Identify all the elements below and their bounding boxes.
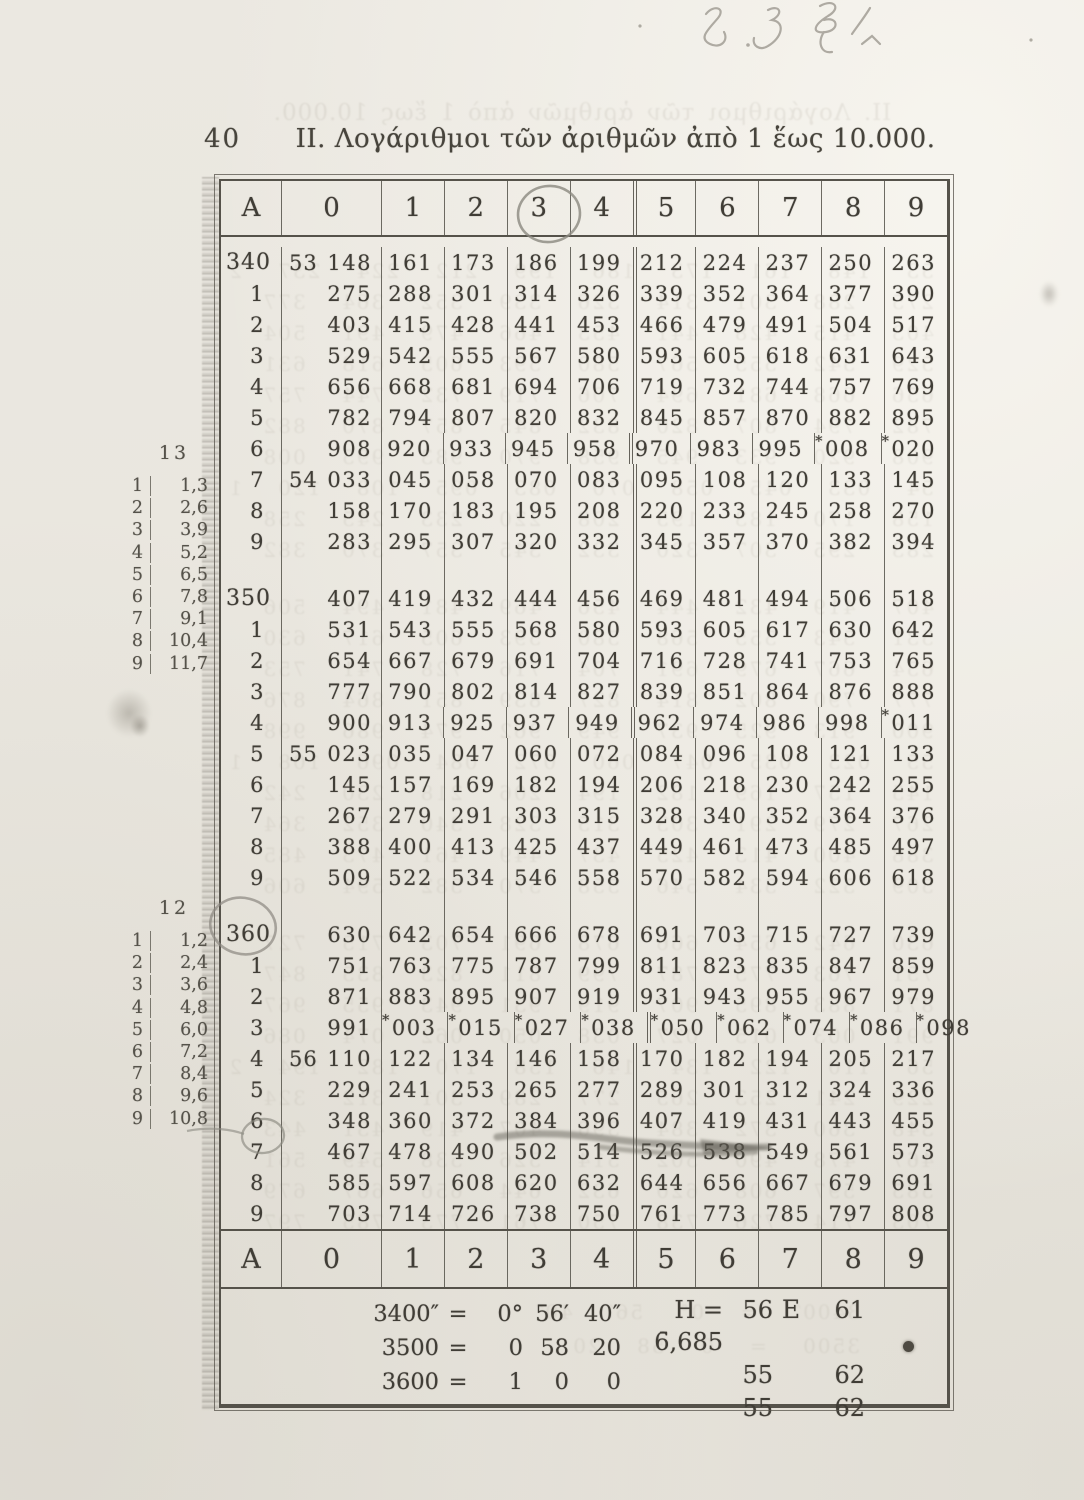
pp-part: 2,6 — [150, 498, 212, 518]
table-cell: 54033 — [281, 464, 381, 495]
table-cell: 396 — [570, 1105, 633, 1136]
table-row: 4900913925937949962974986998*011 — [221, 707, 947, 738]
table-cell: 340 — [695, 800, 758, 831]
table-cell: 706 — [570, 371, 633, 402]
table-cell: 195 — [507, 495, 570, 526]
table-cell: 907 — [507, 981, 570, 1012]
table-row: 360630642654666678691703715727739 — [221, 919, 947, 950]
cell-value: 275 — [327, 282, 372, 306]
table-cell: 345 — [633, 526, 696, 557]
h-value: 62 — [809, 1359, 865, 1391]
table-cell: 859 — [884, 950, 947, 981]
table-cell: 538 — [695, 1136, 758, 1167]
asterisk-carry-mark: * — [917, 1012, 926, 1029]
row-label: 4 — [221, 707, 281, 738]
table-cell: 811 — [633, 950, 696, 981]
table-cell: 364 — [758, 278, 821, 309]
column-header: 7 — [758, 1231, 821, 1287]
h-value: 55 — [723, 1392, 773, 1424]
table-cell: *015 — [447, 1012, 513, 1043]
table-row: 8388400413425437449461473485497 — [221, 831, 947, 862]
gap-cell — [821, 893, 884, 919]
table-cell: 594 — [758, 862, 821, 893]
table-cell: 691 — [633, 919, 696, 950]
column-header: 1 — [381, 1231, 444, 1287]
asterisk-carry-mark: * — [515, 1012, 524, 1029]
table-row: 5782794807820832845857870882895 — [221, 402, 947, 433]
table-row: 2403415428441453466479491504517 — [221, 309, 947, 340]
table-cell: 083 — [570, 464, 633, 495]
pp-part: 9,1 — [150, 609, 212, 629]
table-cell: 045 — [381, 464, 444, 495]
table-cell: 667 — [758, 1167, 821, 1198]
table-cell: 726 — [444, 1198, 507, 1229]
table-cell: 775 — [444, 950, 507, 981]
table-cell: 377 — [821, 278, 884, 309]
table-cell: 194 — [758, 1043, 821, 1074]
pp-row: 911,7 — [122, 653, 212, 675]
table-cell: 777 — [281, 676, 381, 707]
table-cell: 245 — [758, 495, 821, 526]
table-cell: 419 — [381, 583, 444, 614]
gap-cell — [221, 893, 281, 919]
table-row: 7267279291303315328340352364376 — [221, 800, 947, 831]
conversion-value: = — [439, 1299, 477, 1330]
table-header-row: A0123456789 — [221, 181, 947, 237]
table-row: 350407419432444456469481494506518 — [221, 583, 947, 614]
column-header: 5 — [633, 181, 696, 235]
table-cell: 120 — [758, 464, 821, 495]
table-cell: 407 — [281, 583, 381, 614]
table-cell: 605 — [695, 340, 758, 371]
column-header: 1 — [381, 181, 444, 235]
table-cell: 895 — [444, 981, 507, 1012]
table-cell: 945 — [505, 433, 567, 464]
h-value: 55 — [723, 1359, 773, 1391]
table-cell: 388 — [281, 831, 381, 862]
table-cell: 808 — [884, 1198, 947, 1229]
table-cell: 691 — [507, 645, 570, 676]
table-cell: 732 — [695, 371, 758, 402]
table-cell: 958 — [567, 433, 629, 464]
conversion-value: = — [439, 1333, 477, 1364]
table-cell: 678 — [570, 919, 633, 950]
table-cell: 728 — [695, 645, 758, 676]
row-label: 3 — [221, 676, 281, 707]
row-label: 7 — [221, 800, 281, 831]
table-cell: 517 — [884, 309, 947, 340]
row-label: 9 — [221, 862, 281, 893]
gap-cell — [633, 893, 696, 919]
row-label: 4 — [221, 371, 281, 402]
table-cell: 807 — [444, 402, 507, 433]
table-cell: 785 — [758, 1198, 821, 1229]
table-cell: 301 — [695, 1074, 758, 1105]
table-cell: 518 — [884, 583, 947, 614]
pp-row: 67,2 — [122, 1041, 212, 1063]
pp-part: 2,4 — [150, 953, 212, 973]
table-cell: 441 — [507, 309, 570, 340]
table-cell: 122 — [381, 1043, 444, 1074]
pp-part: 3,6 — [150, 975, 212, 995]
table-cell: 449 — [633, 831, 696, 862]
table-cell: 617 — [758, 614, 821, 645]
pp-row: 44,8 — [122, 997, 212, 1019]
table-cell: 580 — [570, 340, 633, 371]
table-cell: 288 — [381, 278, 444, 309]
gap-cell — [758, 893, 821, 919]
table-cell: 224 — [695, 247, 758, 278]
table-cell: 534 — [444, 862, 507, 893]
table-cell: 133 — [821, 464, 884, 495]
cell-value: 086 — [860, 1016, 905, 1040]
table-cell: 253 — [444, 1074, 507, 1105]
table-cell: 573 — [884, 1136, 947, 1167]
cell-value: 050 — [661, 1016, 706, 1040]
e-column-label — [773, 1392, 809, 1424]
cell-value: 703 — [327, 1202, 372, 1226]
column-header: 2 — [444, 181, 507, 235]
table-cell: 895 — [884, 402, 947, 433]
table-row: 3529542555567580593605618631643 — [221, 340, 947, 371]
table-row: 6908920933945958970983995*008*020 — [221, 433, 947, 464]
table-cell: 580 — [570, 614, 633, 645]
table-cell: 058 — [444, 464, 507, 495]
row-label: 2 — [221, 645, 281, 676]
gap-cell — [570, 893, 633, 919]
table-cell: 642 — [884, 614, 947, 645]
row-label: 3 — [221, 1012, 281, 1043]
pp-multiplier: 3 — [122, 975, 150, 995]
table-cell: 497 — [884, 831, 947, 862]
angle-conversion-block: 3400″=0°56′40″3500=058203600=100 — [349, 1299, 621, 1398]
pp-row: 910,8 — [122, 1108, 212, 1130]
table-cell: 206 — [633, 769, 696, 800]
column-header: 6 — [695, 181, 758, 235]
table-cell: 275 — [281, 278, 381, 309]
h-value: 61 — [809, 1294, 865, 1358]
table-cell: 289 — [633, 1074, 696, 1105]
table-cell: 597 — [381, 1167, 444, 1198]
mantissa-prefix: 54 — [289, 468, 318, 492]
pp-multiplier: 6 — [122, 587, 150, 607]
row-label: 340 — [221, 247, 281, 278]
table-cell: 876 — [821, 676, 884, 707]
difference-value: 13 — [122, 442, 212, 464]
h-value — [605, 1392, 723, 1424]
column-header: 3 — [507, 1231, 570, 1287]
proportional-parts-13: 1311,322,633,945,256,567,879,1810,4911,7 — [122, 442, 212, 675]
table-cell: 654 — [444, 919, 507, 950]
table-cell: 494 — [758, 583, 821, 614]
table-cell: 933 — [443, 433, 505, 464]
gap-cell — [281, 557, 381, 583]
pp-part: 6,0 — [150, 1020, 212, 1040]
table-cell: 509 — [281, 862, 381, 893]
table-cell: 694 — [507, 371, 570, 402]
table-cell: 466 — [633, 309, 696, 340]
table-row: 5229241253265277289301312324336 — [221, 1074, 947, 1105]
table-cell: 194 — [570, 769, 633, 800]
table-cell: 328 — [633, 800, 696, 831]
cell-value: 015 — [458, 1016, 503, 1040]
table-cell: *062 — [716, 1012, 782, 1043]
table-cell: 967 — [821, 981, 884, 1012]
table-cell: 630 — [281, 919, 381, 950]
table-cell: 715 — [758, 919, 821, 950]
pp-multiplier: 1 — [122, 476, 150, 496]
cell-value: 908 — [327, 437, 372, 461]
table-cell: 744 — [758, 371, 821, 402]
column-header: 4 — [570, 1231, 633, 1287]
pp-part: 11,7 — [150, 654, 212, 674]
column-header: 8 — [821, 1231, 884, 1287]
asterisk-carry-mark: * — [651, 1012, 660, 1029]
cell-value: 467 — [327, 1140, 372, 1164]
table-cell: 529 — [281, 340, 381, 371]
table-cell: 352 — [695, 278, 758, 309]
table-cell: 303 — [507, 800, 570, 831]
mantissa-prefix: 55 — [289, 742, 318, 766]
row-label: 2 — [221, 309, 281, 340]
asterisk-carry-mark: * — [815, 433, 824, 450]
table-cell: 491 — [758, 309, 821, 340]
table-cell: 455 — [884, 1105, 947, 1136]
cell-value: 348 — [327, 1109, 372, 1133]
table-cell: 606 — [821, 862, 884, 893]
pp-multiplier: 5 — [122, 1020, 150, 1040]
table-cell: 443 — [821, 1105, 884, 1136]
gap-cell — [884, 893, 947, 919]
table-cell: 283 — [281, 526, 381, 557]
cell-value: 158 — [327, 499, 372, 523]
table-cell: 739 — [884, 919, 947, 950]
cell-value: 008 — [825, 437, 870, 461]
table-cell: 186 — [507, 247, 570, 278]
table-cell: 691 — [884, 1167, 947, 1198]
column-header: A — [221, 181, 281, 235]
table-cell: 53148 — [281, 247, 381, 278]
cell-value: 267 — [327, 804, 372, 828]
table-cell: 336 — [884, 1074, 947, 1105]
table-cell: 870 — [758, 402, 821, 433]
table-cell: 400 — [381, 831, 444, 862]
table-cell: 727 — [821, 919, 884, 950]
column-header: 3 — [507, 181, 570, 235]
table-cell: 364 — [821, 800, 884, 831]
table-cell: 555 — [444, 340, 507, 371]
conversion-value: 3500 — [349, 1333, 439, 1364]
table-cell: 229 — [281, 1074, 381, 1105]
cell-value: 283 — [327, 530, 372, 554]
cell-value: 403 — [327, 313, 372, 337]
gap-cell — [381, 893, 444, 919]
column-header: 8 — [821, 181, 884, 235]
conversion-value: 56′ — [523, 1299, 569, 1330]
table-row: 2654667679691704716728741753765 — [221, 645, 947, 676]
table-cell: 199 — [570, 247, 633, 278]
table-row: 7467478490502514526538549561573 — [221, 1136, 947, 1167]
table-row: 2871883895907919931943955967979 — [221, 981, 947, 1012]
page-header: 40 II. Λογάριθμοι τῶν ἀριθμῶν ἀπὸ 1 ἕως … — [204, 124, 956, 154]
row-label: 8 — [221, 831, 281, 862]
block-gap — [221, 893, 947, 919]
table-cell: 937 — [506, 707, 568, 738]
table-cell: 882 — [821, 402, 884, 433]
table-cell: 070 — [507, 464, 570, 495]
table-cell: 370 — [758, 526, 821, 557]
cell-value: 020 — [891, 437, 936, 461]
table-cell: 845 — [633, 402, 696, 433]
table-cell: 145 — [281, 769, 381, 800]
pp-row: 11,2 — [122, 930, 212, 952]
table-cell: 437 — [570, 831, 633, 862]
paper-smudge — [1036, 276, 1062, 312]
table-cell: 797 — [821, 1198, 884, 1229]
table-cell: 314 — [507, 278, 570, 309]
pp-part: 6,5 — [150, 565, 212, 585]
table-cell: 949 — [568, 707, 630, 738]
table-cell: 339 — [633, 278, 696, 309]
table-cell: 974 — [693, 707, 755, 738]
table-cell: 146 — [507, 1043, 570, 1074]
table-cell: 765 — [884, 645, 947, 676]
table-cell: 943 — [695, 981, 758, 1012]
e-column-label: E — [773, 1294, 809, 1358]
cell-value: 388 — [327, 835, 372, 859]
table-cell: 291 — [444, 800, 507, 831]
row-label: 6 — [221, 769, 281, 800]
table-cell: 714 — [381, 1198, 444, 1229]
table-cell: *098 — [916, 1012, 982, 1043]
table-cell: 741 — [758, 645, 821, 676]
table-cell: 514 — [570, 1136, 633, 1167]
table-cell: 403 — [281, 309, 381, 340]
row-label: 7 — [221, 1136, 281, 1167]
pp-row: 79,1 — [122, 608, 212, 630]
conversion-value: = — [439, 1367, 477, 1398]
table-cell: 312 — [758, 1074, 821, 1105]
table-cell: 561 — [821, 1136, 884, 1167]
cell-value: 145 — [327, 773, 372, 797]
table-cell: 277 — [570, 1074, 633, 1105]
table-cell: 170 — [381, 495, 444, 526]
table-cell: 157 — [381, 769, 444, 800]
row-label: 350 — [221, 583, 281, 614]
gap-cell — [444, 557, 507, 583]
table-cell: 432 — [444, 583, 507, 614]
table-cell: 605 — [695, 614, 758, 645]
table-cell: 820 — [507, 402, 570, 433]
table-cell: 504 — [821, 309, 884, 340]
table-row: 3991*003*015*027*038*050*062*074*086*098 — [221, 1012, 947, 1043]
table-cell: 072 — [570, 738, 633, 769]
table-row: 1275288301314326339352364377390 — [221, 278, 947, 309]
table-row: 9703714726738750761773785797808 — [221, 1198, 947, 1229]
table-cell: 242 — [821, 769, 884, 800]
table-cell: 857 — [695, 402, 758, 433]
gap-cell — [570, 557, 633, 583]
paper-stain — [126, 710, 154, 742]
table-cell: 823 — [695, 950, 758, 981]
cell-value: 585 — [327, 1171, 372, 1195]
table-cell: 656 — [281, 371, 381, 402]
pp-row: 33,9 — [122, 519, 212, 541]
column-header: 0 — [281, 1231, 381, 1287]
cell-value: 777 — [327, 680, 372, 704]
table-cell: 549 — [758, 1136, 821, 1167]
table-cell: 998 — [818, 707, 880, 738]
table-cell: 108 — [695, 464, 758, 495]
table-cell: 233 — [695, 495, 758, 526]
table-cell: 241 — [381, 1074, 444, 1105]
cell-value: 407 — [327, 587, 372, 611]
table-cell: 473 — [758, 831, 821, 862]
row-label: 5 — [221, 1074, 281, 1105]
gap-cell — [381, 557, 444, 583]
table-cell: 555 — [444, 614, 507, 645]
pp-multiplier: 2 — [122, 498, 150, 518]
table-cell: *050 — [647, 1012, 716, 1043]
pp-row: 810,4 — [122, 630, 212, 652]
table-cell: 217 — [884, 1043, 947, 1074]
pp-row: 78,4 — [122, 1063, 212, 1085]
table-cell: 681 — [444, 371, 507, 402]
conversion-value: 1 — [477, 1367, 523, 1398]
table-row: 8585597608620632644656667679691 — [221, 1167, 947, 1198]
table-cell: 618 — [884, 862, 947, 893]
table-cell: 047 — [444, 738, 507, 769]
cell-value: 782 — [327, 406, 372, 430]
row-label: 5 — [221, 402, 281, 433]
table-cell: 970 — [629, 433, 691, 464]
table-cell: 084 — [633, 738, 696, 769]
cell-value: 098 — [926, 1016, 971, 1040]
cell-value: 110 — [327, 1047, 372, 1071]
table-cell: 270 — [884, 495, 947, 526]
table-cell: *020 — [881, 433, 947, 464]
table-cell: 668 — [381, 371, 444, 402]
table-cell: 618 — [758, 340, 821, 371]
h-value: 62 — [809, 1392, 865, 1424]
table-cell: 883 — [381, 981, 444, 1012]
row-label: 6 — [221, 433, 281, 464]
table-body: 3405314816117318619921222423725026312752… — [221, 237, 947, 1229]
asterisk-carry-mark: * — [581, 1012, 590, 1029]
table-cell: *008 — [814, 433, 880, 464]
pp-multiplier: 3 — [122, 520, 150, 540]
asterisk-carry-mark: * — [882, 433, 891, 450]
table-cell: 787 — [507, 950, 570, 981]
table-cell: 656 — [695, 1167, 758, 1198]
table-cell: 481 — [695, 583, 758, 614]
table-cell: 324 — [821, 1074, 884, 1105]
table-cell: *027 — [514, 1012, 580, 1043]
gap-cell — [884, 557, 947, 583]
pp-part: 3,9 — [150, 520, 212, 540]
e-column-label — [773, 1359, 809, 1391]
table-cell: 582 — [695, 862, 758, 893]
table-cell: *086 — [849, 1012, 915, 1043]
row-label: 7 — [221, 464, 281, 495]
table-cell: 704 — [570, 645, 633, 676]
table-cell: 679 — [444, 645, 507, 676]
table-cell: 230 — [758, 769, 821, 800]
pp-part: 10,8 — [150, 1109, 212, 1129]
row-label: 4 — [221, 1043, 281, 1074]
table-cell: 173 — [444, 247, 507, 278]
table-cell: 145 — [884, 464, 947, 495]
